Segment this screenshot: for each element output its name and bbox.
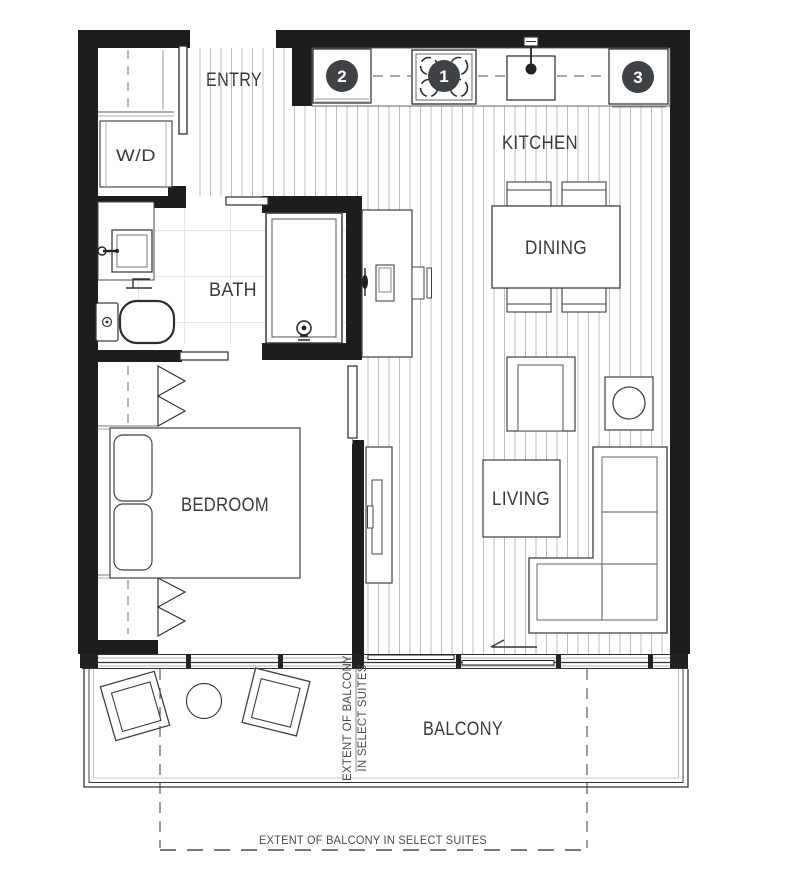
bifold-door-icon: [158, 578, 185, 607]
tv-mount-icon: [368, 506, 374, 528]
balcony-area: BALCONY EXTENT OF BALCONY IN SELECT SUIT…: [84, 655, 688, 787]
kitchen-floor-upper: [292, 106, 670, 196]
balcony-rail-mid: [89, 669, 683, 783]
marker-3-number: 3: [633, 68, 642, 87]
dining-chair: [507, 287, 551, 312]
bifold-door-icon: [158, 396, 185, 426]
wall-top-right: [276, 30, 690, 48]
peninsula-faucet-icon: [362, 275, 368, 289]
kitchen-label: KITCHEN: [502, 133, 578, 154]
mullion-post: [456, 654, 461, 668]
bedroom-area: BEDROOM: [98, 366, 357, 636]
wall-bath-bottom: [98, 350, 182, 362]
mullion-post: [80, 654, 98, 668]
dining-chair: [562, 287, 606, 312]
extent-dashed-outline: EXTENT OF BALCONY IN SELECT SUITES: [160, 669, 587, 850]
balcony-table: [187, 684, 222, 719]
entry-door-leaf: [179, 46, 187, 134]
bath-pocket-door-top: [226, 197, 268, 205]
dining-chair: [562, 182, 606, 207]
floor-plan: W/D ENTRY 2: [0, 0, 788, 896]
wall-tub-bottom: [262, 343, 362, 360]
bath-label: BATH: [209, 280, 257, 301]
mullion-post: [186, 654, 191, 668]
toilet-flush-dot: [106, 321, 109, 324]
living-label: LIVING: [492, 489, 550, 510]
sliding-panel: [462, 661, 554, 666]
pillow: [114, 435, 152, 501]
balcony-rail-outer: [84, 669, 688, 787]
wall-entry-stub: [292, 48, 312, 106]
marker-1-number: 1: [439, 67, 448, 86]
pillow: [114, 504, 152, 570]
tub-drain-dot: [302, 326, 307, 331]
extent-vertical-text-1: EXTENT OF BALCONY: [342, 655, 354, 781]
extent-vertical-text-2: IN SELECT SUITES: [357, 664, 369, 771]
wall-tub-right: [346, 196, 362, 360]
mullion-post: [670, 654, 688, 668]
balcony-label: BALCONY: [423, 719, 503, 740]
wall-bottom-left: [78, 640, 158, 654]
bedroom-label: BEDROOM: [181, 495, 269, 516]
bedroom-sliding-door: [348, 366, 357, 438]
faucet-head-icon: [526, 64, 537, 75]
mullion-post: [278, 654, 283, 668]
marker-2-number: 2: [337, 67, 346, 86]
mullion-post: [648, 654, 653, 668]
dining-chair: [507, 182, 551, 207]
mullion-post: [556, 654, 561, 668]
wall-right: [670, 48, 690, 654]
washer-dryer-label: W/D: [116, 146, 156, 165]
balcony-rail-inner: [94, 669, 679, 778]
extent-bottom-text: EXTENT OF BALCONY IN SELECT SUITES: [259, 833, 487, 847]
toilet-bowl: [120, 301, 174, 343]
window-wall: [80, 654, 688, 669]
sliding-panel: [368, 655, 454, 660]
bifold-door-icon: [158, 607, 185, 636]
wall-top-left: [78, 30, 190, 48]
wall-bedroom-living-divider: [352, 440, 364, 654]
dining-label: DINING: [525, 238, 587, 259]
armchair-seat: [518, 365, 563, 431]
bifold-door-icon: [158, 366, 185, 396]
entry-label: ENTRY: [206, 70, 262, 91]
floor-plan-svg: W/D ENTRY 2: [0, 0, 788, 896]
lamp-icon: [613, 387, 645, 419]
peninsula-ledge-bar: [427, 268, 432, 298]
balcony-chair: [242, 668, 310, 736]
wall-left: [78, 30, 98, 654]
bath-pocket-door-bottom: [180, 352, 228, 360]
balcony-chair: [100, 671, 169, 740]
peninsula-ledge: [412, 267, 424, 299]
bath-faucet-tip: [115, 249, 119, 253]
